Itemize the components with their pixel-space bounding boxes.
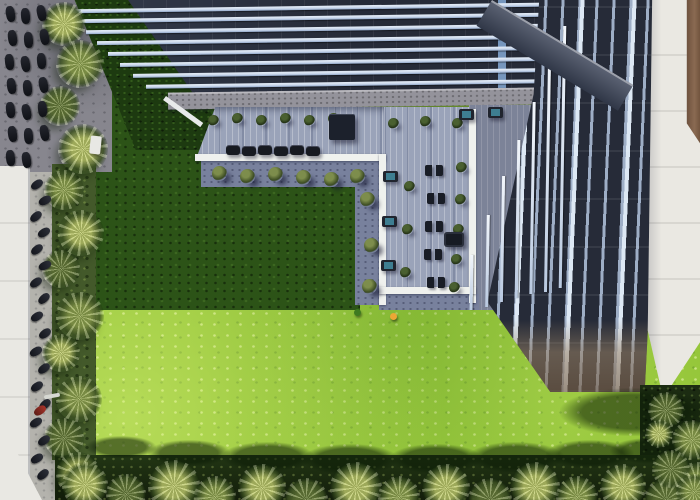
aerial-photo-building-lawn bbox=[0, 0, 700, 500]
planting-bed-left bbox=[52, 164, 96, 460]
palm-belt-bottom bbox=[55, 455, 700, 500]
walkway-bottom bbox=[379, 294, 479, 310]
walkway-right bbox=[355, 181, 381, 305]
terrace-deck-right-arm bbox=[384, 107, 470, 305]
terrace-curb-bottom bbox=[379, 287, 476, 294]
terrace-curb-inner bbox=[379, 154, 386, 305]
terrace-curb-top bbox=[195, 154, 386, 161]
